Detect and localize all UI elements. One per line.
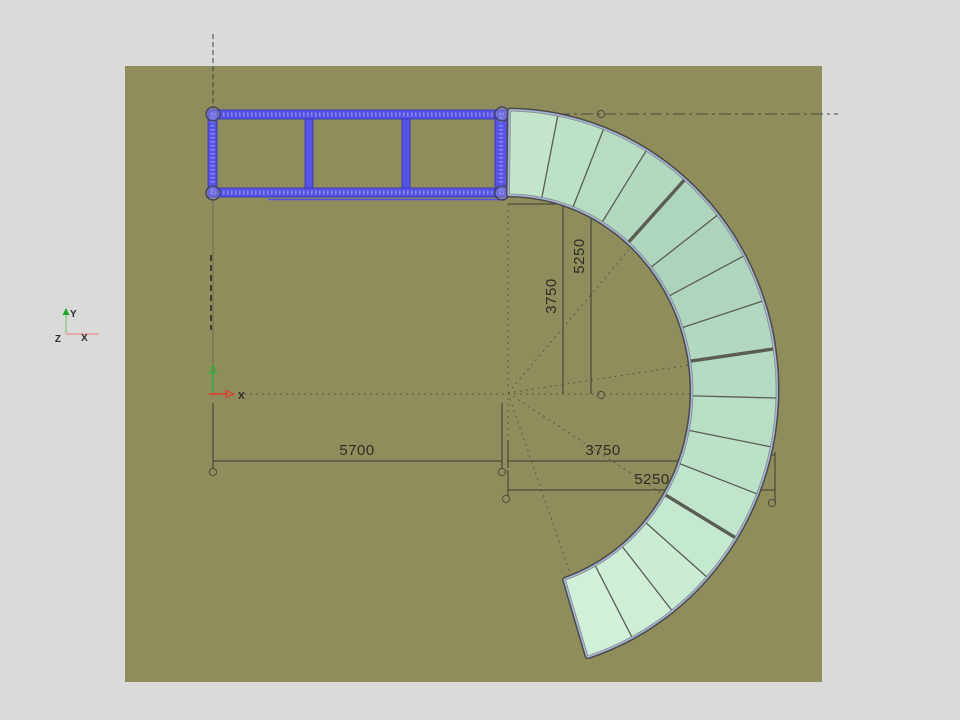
dim-text-3750-v: 3750 xyxy=(543,278,560,313)
cad-viewport[interactable]: 5700 3750 5250 3750 5250 xyxy=(0,0,960,720)
ucs-y-label: Y xyxy=(70,309,77,320)
dim-text-5250-h: 5250 xyxy=(634,471,669,488)
frame-top-beam[interactable] xyxy=(208,110,507,119)
world-ucs-icon: Y X Z xyxy=(55,308,99,345)
frame-bottom-beam[interactable] xyxy=(208,188,507,197)
dim-text-5700: 5700 xyxy=(339,442,374,459)
dim-text-3750-h: 3750 xyxy=(585,442,620,459)
dim-text-5250-v: 5250 xyxy=(571,238,588,273)
origin-x-label: X xyxy=(238,391,245,402)
frame-mullion-1[interactable] xyxy=(305,119,313,188)
frame-mullion-2[interactable] xyxy=(402,119,410,188)
ucs-x-label: X xyxy=(81,333,88,344)
ucs-y-arrowhead xyxy=(63,308,70,315)
drawing-canvas[interactable]: 5700 3750 5250 3750 5250 xyxy=(0,0,960,720)
ucs-z-label: Z xyxy=(55,334,61,345)
